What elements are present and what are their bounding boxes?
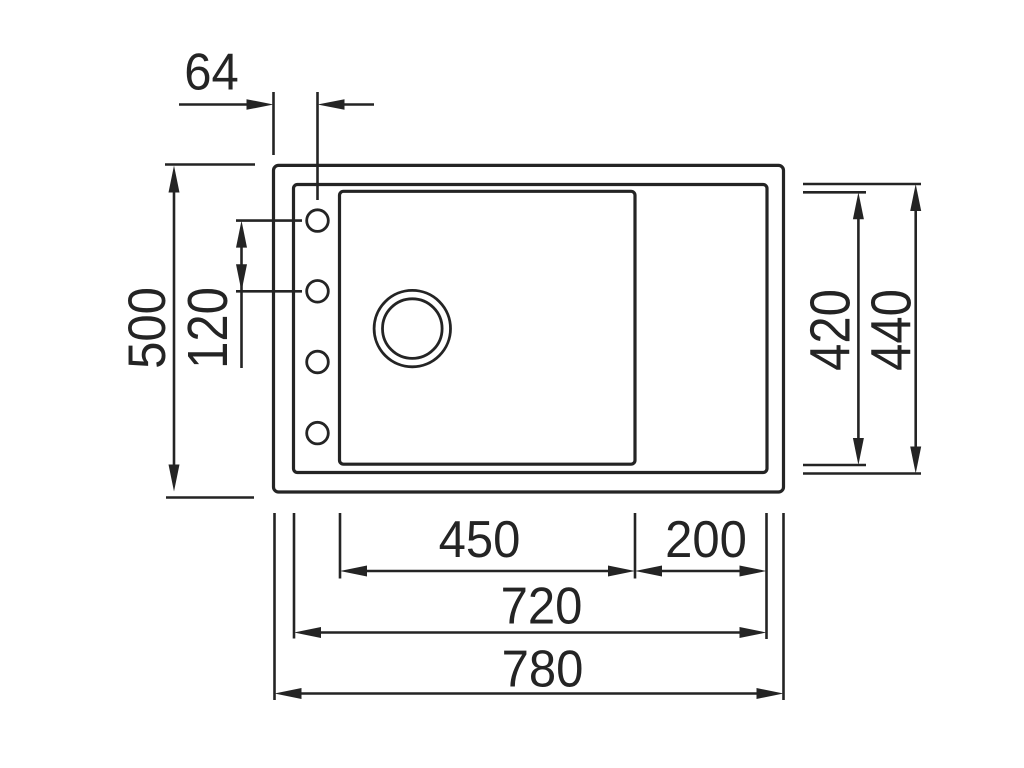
svg-text:780: 780 xyxy=(502,639,584,698)
svg-text:420: 420 xyxy=(799,289,862,371)
svg-text:440: 440 xyxy=(860,289,923,371)
svg-text:720: 720 xyxy=(501,576,583,635)
svg-text:64: 64 xyxy=(184,42,238,101)
svg-text:450: 450 xyxy=(439,510,521,569)
svg-text:500: 500 xyxy=(117,287,176,369)
svg-text:200: 200 xyxy=(665,510,747,569)
svg-text:120: 120 xyxy=(177,287,240,369)
